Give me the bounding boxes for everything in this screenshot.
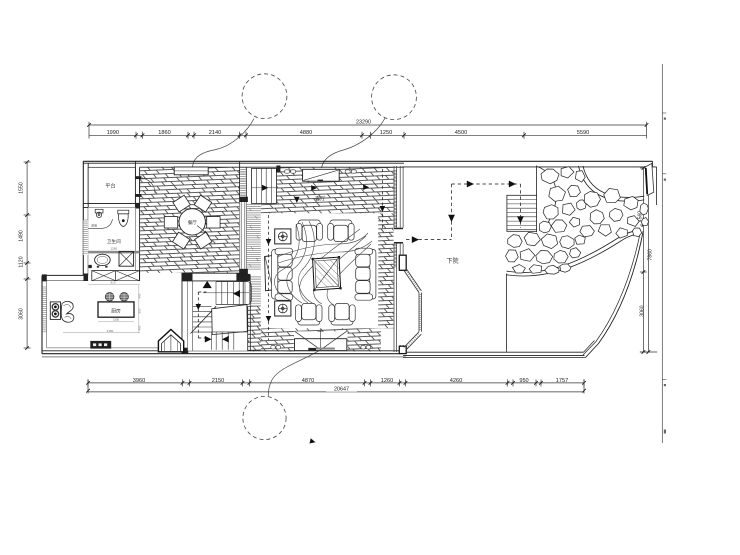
svg-text:1250: 1250 <box>380 130 392 136</box>
svg-text:下院: 下院 <box>446 257 458 265</box>
svg-text:1860: 1860 <box>158 130 170 136</box>
svg-text:1120: 1120 <box>19 256 25 267</box>
svg-text:4880: 4880 <box>300 130 312 136</box>
svg-text:餐厅: 餐厅 <box>188 219 198 226</box>
svg-text:卫生间: 卫生间 <box>107 238 121 245</box>
svg-text:1990: 1990 <box>107 130 119 136</box>
svg-text:1550: 1550 <box>19 182 25 194</box>
svg-text:800: 800 <box>138 308 142 313</box>
svg-text:淋浴: 淋浴 <box>91 223 97 228</box>
svg-text:1500: 1500 <box>113 318 120 322</box>
svg-text:3060: 3060 <box>640 305 646 316</box>
svg-text:7860: 7860 <box>648 249 654 260</box>
svg-text:平台: 平台 <box>105 182 115 190</box>
svg-text:2150: 2150 <box>107 329 114 333</box>
svg-text:20647: 20647 <box>334 387 349 393</box>
svg-text:2150: 2150 <box>212 378 224 384</box>
svg-text:23290: 23290 <box>356 119 371 125</box>
svg-text:450: 450 <box>138 293 142 298</box>
svg-text:1260: 1260 <box>110 247 117 251</box>
svg-text:950: 950 <box>519 378 528 384</box>
svg-text:4500: 4500 <box>455 130 467 136</box>
svg-text:2140: 2140 <box>209 130 221 136</box>
svg-text:450: 450 <box>138 325 142 330</box>
svg-text:3960: 3960 <box>133 378 145 384</box>
svg-text:4870: 4870 <box>302 378 314 384</box>
svg-text:5590: 5590 <box>577 130 589 136</box>
svg-text:4260: 4260 <box>450 378 462 384</box>
svg-text:客厅: 客厅 <box>315 195 325 203</box>
svg-text:1757: 1757 <box>556 378 568 384</box>
svg-text:3060: 3060 <box>19 308 25 320</box>
svg-text:1490: 1490 <box>19 230 25 242</box>
svg-text:1260: 1260 <box>381 378 393 384</box>
svg-text:910: 910 <box>110 280 115 284</box>
svg-text:厨房: 厨房 <box>111 307 121 314</box>
